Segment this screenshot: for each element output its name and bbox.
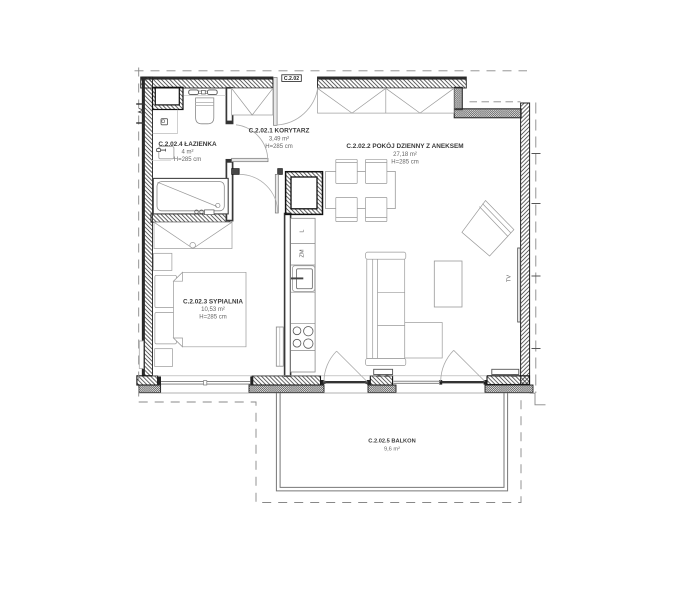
svg-text:C.2.02.5 BALKON: C.2.02.5 BALKON — [368, 439, 415, 445]
svg-text:ZM: ZM — [300, 249, 306, 257]
svg-text:C.2.02: C.2.02 — [284, 76, 299, 82]
svg-text:H=285 cm: H=285 cm — [174, 157, 202, 163]
svg-text:C.2.02.1 KORYTARZ: C.2.02.1 KORYTARZ — [249, 128, 310, 135]
svg-text:C.2.02.4 ŁAZIENKA: C.2.02.4 ŁAZIENKA — [158, 141, 217, 148]
svg-text:10,53 m²: 10,53 m² — [201, 307, 225, 313]
svg-text:C.2.02.2 POKÓJ DZIENNY Z ANEKS: C.2.02.2 POKÓJ DZIENNY Z ANEKSEM — [346, 141, 463, 150]
svg-text:H=285 cm: H=285 cm — [391, 159, 419, 165]
svg-text:9,6 m²: 9,6 m² — [384, 447, 400, 453]
svg-text:4 m²: 4 m² — [182, 150, 194, 156]
svg-text:C.2.02.3 SYPIALNIA: C.2.02.3 SYPIALNIA — [183, 298, 243, 305]
svg-text:27,18 m²: 27,18 m² — [393, 152, 417, 158]
svg-text:H=285 cm: H=285 cm — [199, 315, 227, 321]
svg-text:3,49 m²: 3,49 m² — [269, 136, 289, 142]
svg-text:TV: TV — [507, 275, 513, 282]
svg-text:H=285 cm: H=285 cm — [265, 144, 293, 150]
svg-text:L: L — [300, 229, 306, 232]
